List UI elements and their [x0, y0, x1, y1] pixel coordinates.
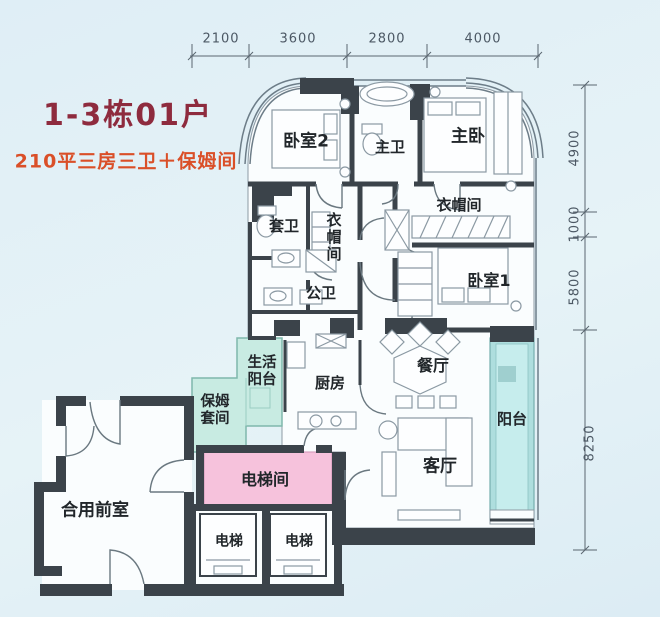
dim-top-4: 4000 — [464, 32, 501, 47]
dim-right-2: 1000 — [568, 205, 583, 242]
dim-top-1: 2100 — [202, 32, 239, 47]
dim-top-3: 2800 — [368, 32, 405, 47]
dim-right-3: 5800 — [568, 268, 583, 305]
plan-title: 1-3栋01户 — [43, 90, 213, 134]
dim-right-4: 8250 — [583, 424, 598, 461]
plan-subtitle: 210平三房三卫＋保姆间 — [15, 147, 238, 174]
elevator-hall-zone — [204, 452, 332, 506]
balcony-zone — [490, 338, 534, 524]
service-zone — [192, 338, 282, 452]
dim-top-2: 3600 — [279, 32, 316, 47]
dim-right-1: 4900 — [568, 129, 583, 166]
floorplan-page: 1-3栋01户 210平三房三卫＋保姆间 2100 3600 2800 4000… — [0, 0, 660, 617]
